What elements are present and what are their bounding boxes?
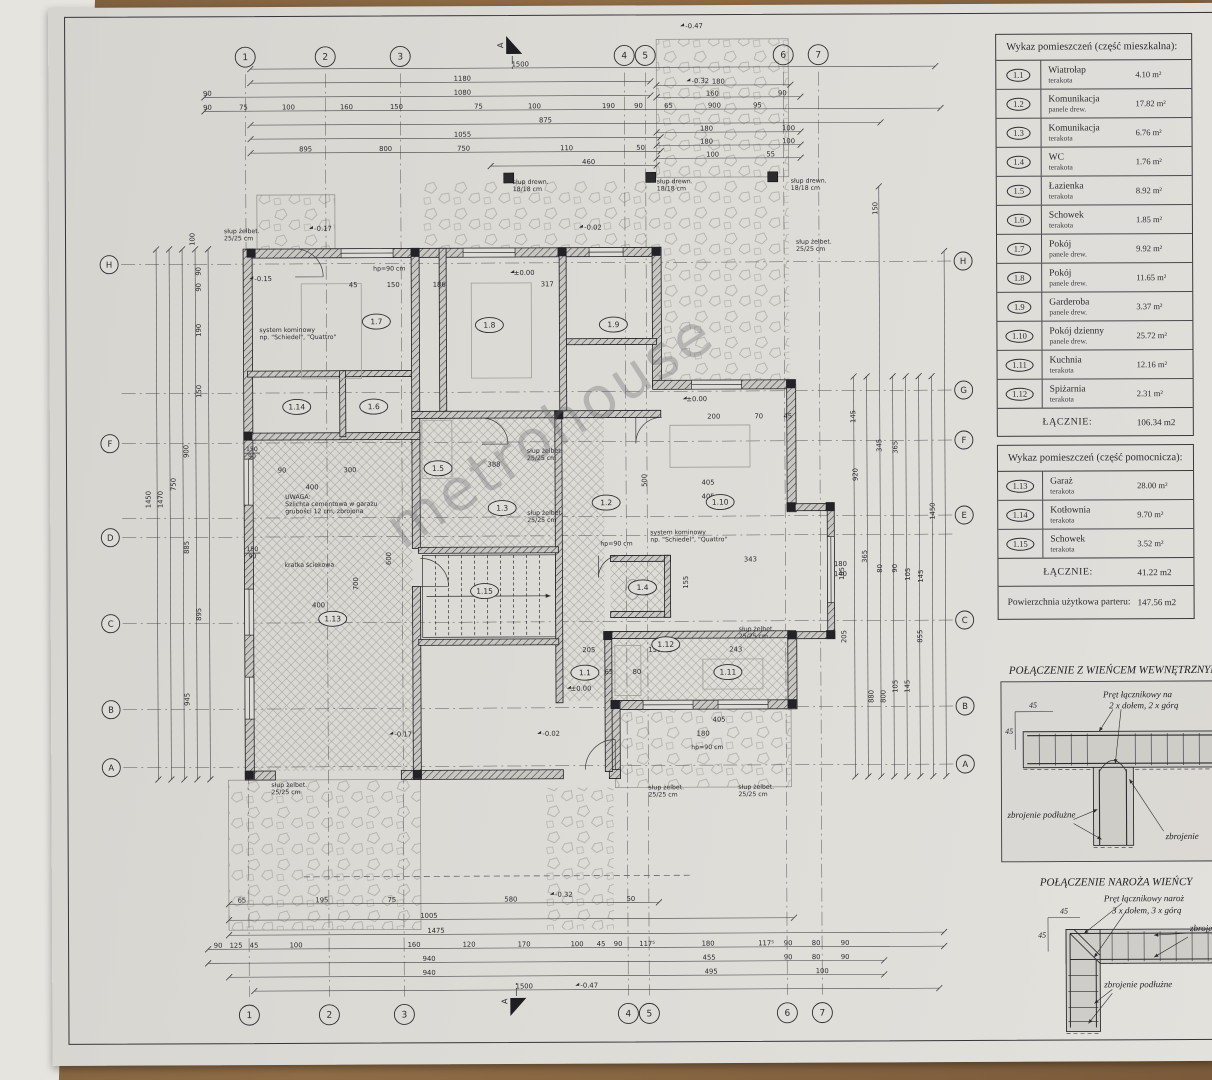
room-number: 1.9 [607,320,619,329]
room-finish: terakota [1048,75,1131,84]
room-name-cell: Garderobapanele drew. [1042,295,1136,318]
room-number: 1.10 [712,498,729,507]
dim-label: 90 [778,89,787,97]
dim-label: 920 [852,468,860,481]
dim-label: 150 [390,103,403,111]
dim-label: 90 [784,953,793,961]
room-row: 1.2Komunikacjapanele drew.17.82 m² [996,89,1191,119]
note-text: 18/18 cm [791,185,820,192]
dim-label: 65 [605,668,614,676]
dim-label: 895 [299,145,312,153]
rc-column-square [787,502,796,511]
dim-label: 1450 [145,491,153,508]
dim-line [944,251,946,776]
room-area: 2.31 m² [1137,388,1193,398]
rc-column-square [826,502,835,511]
detail-2-spec-label: 3 x dołem, 3 x górą [1111,905,1182,915]
grid-bubble-label: B [108,706,114,716]
room-table-aux-title: Wykaz pomieszczeń (część pomocnicza): [998,445,1193,472]
dim-label: 160 [706,90,719,98]
dim-label: 1080 [454,89,471,97]
room-number: 1.5 [432,464,444,473]
dim-label: 455 [703,954,716,962]
dim-label: 90 [214,942,223,950]
floor-plan: 11223344556677HHGFFEDCCBBAA [60,4,1000,1054]
room-row: 1.14Kotłowniaterakota9.70 m² [998,500,1193,530]
room-row: 1.5Łazienkaterakota8.92 m² [997,176,1192,206]
room-row: 1.9Garderobapanele drew.3.37 m² [997,292,1192,322]
level-label: -0.17 [394,730,412,738]
dim-label: 120 [463,941,476,949]
dim-label: 750 [170,478,178,491]
dim-label: 300 [344,466,357,474]
detail-2-title: POŁĄCZENIE NAROŻA WIEŃCY [1039,876,1195,889]
detail-1-longitudinal-label: zbrojenie podłużne [1007,810,1076,820]
room-row: 1.8Pokójpanele drew.11.65 m² [997,263,1192,293]
room-name: Komunikacja [1048,94,1131,104]
room-name: Spiżarnia [1050,384,1133,394]
dim-label: 145 [903,680,911,693]
wood-post-square [646,172,656,182]
dim-label: 90 [195,283,203,292]
note-text: system kominowy [650,529,706,536]
room-area: 11.65 m² [1136,272,1192,282]
room-row: 1.13Garażterakota28.00 m² [998,471,1193,501]
dim-label: 90 [784,939,793,947]
dim-label: 50 [627,895,636,903]
room-name-cell: Wiatrołapterakota [1041,63,1135,86]
total-value: 41.22 m2 [1137,567,1193,577]
dim-label: 75 [388,896,397,904]
rc-column-square [558,247,567,256]
note-text: 25/25 cm [739,633,768,640]
level-label: -0.17 [314,225,332,233]
detail-1-dim-top: 45 [1029,701,1037,710]
dim-line [854,376,856,776]
room-finish: terakota [1049,133,1132,142]
dim-label: 195 [315,896,328,904]
note-text: słup żelbet. [224,228,260,235]
grid-bubble-label: 1 [247,1011,253,1021]
dim-label: 243 [729,645,742,653]
dim-label: 160 [408,941,421,949]
rc-column-square [611,700,620,709]
room-name: Garderoba [1049,297,1132,307]
section-marker-triangle [510,998,526,1016]
grid-bubble-label: 1 [242,53,248,63]
dim-label: 100 [782,124,795,132]
room-schedule-panel: Wykaz pomieszczeń (część mieszkalna): 1.… [995,33,1195,620]
note-text: 25/25 cm [527,455,556,462]
room-name: WC [1049,152,1132,162]
room-finish: panele drew. [1049,278,1132,287]
level-label: ±0.00 [571,685,592,693]
note-text: słup żelbet. [527,510,563,517]
room-finish: panele drew. [1049,336,1132,345]
room-name-cell: Kotłowniaterakota [1043,503,1137,526]
usable-area-row: Powierzchnia użytkowa parteru: 147.56 m2 [998,586,1195,620]
room-number-badge: 1.11 [998,351,1043,379]
note-text: system kominowy [259,327,315,334]
dim-label: 117⁵ [639,940,655,948]
dim-label: 45 [250,942,259,950]
dim-label: 90 [634,102,643,110]
dim-label: 150 [871,202,879,215]
grid-bubble-label: E [962,511,967,521]
room-finish: terakota [1050,394,1133,403]
grid-bubble-label: 6 [785,1009,791,1019]
dim-label: 80 [876,564,884,573]
note-text: słup żelbet. [738,784,774,791]
room-row: 1.15Schowekterakota3.52 m² [998,529,1193,558]
grid-bubble-label: 4 [626,1009,632,1019]
room-row: 1.4WCterakota1.76 m² [997,147,1192,177]
dim-label: 100 [816,967,829,975]
level-mark-icon [510,270,514,273]
room-row: 1.10Pokój dziennypanele drew.25.72 m² [997,321,1192,351]
room-number: 1.11 [720,668,737,677]
detail-2-reinforcement-label: zbrojenie [1189,923,1212,933]
note-text: słup żelbet. [796,239,832,246]
dim-line [208,249,210,779]
dim-label: 100 [282,103,295,111]
dim-label: 1055 [454,131,471,139]
dim-label: 180 [712,78,725,86]
detail-2-rod-label: Pręt łącznikowy naroż [1103,893,1185,903]
room-finish: terakota [1050,365,1133,374]
dim-line [251,151,661,153]
note-text: słup drewn. [657,178,693,185]
note-text: hp=90 cm [373,265,405,272]
grid-bubble-label: H [106,261,112,271]
room-number-badge: 1.7 [997,235,1042,263]
room-row: 1.3Komunikacjaterakota6.76 m² [996,118,1191,148]
room-area: 9.70 m² [1137,509,1193,519]
dim-label: 317 [541,280,554,288]
detail-1-reinforcement-label: zbrojenie [1165,831,1199,841]
dim-label: 365 [861,550,869,563]
section-letter: A [496,42,505,48]
room-name-cell: Kuchniaterakota [1043,353,1137,376]
dim-label: 600 [385,552,393,565]
dim-label: 186 [433,281,446,289]
dim-label: 105 [904,568,912,581]
room-area: 9.92 m² [1136,243,1192,253]
note-text: UWAGA: [285,494,310,501]
room-name: Pokój dzienny [1049,326,1132,336]
room-finish: panele drew. [1049,307,1132,316]
room-finish: panele drew. [1048,104,1131,113]
dim-line [204,108,940,111]
room-number: 1.13 [324,614,341,623]
room-finish: panele drew. [1049,249,1132,258]
level-label: ±0.00 [514,269,535,277]
grid-bubble-label: 2 [322,53,328,63]
room-area: 8.92 m² [1136,185,1192,195]
room-number-badge: 1.15 [998,530,1043,558]
note-text: 25/25 cm [527,517,556,524]
dim-line [169,249,171,779]
dim-label: 800 [379,145,392,153]
room-number: 1.6 [368,402,380,411]
note-text: 90 [248,553,256,560]
grid-bubble-label: 5 [642,51,648,61]
room-row: 1.11Kuchniaterakota12.16 m² [998,350,1193,380]
dim-label: 880 [867,690,875,703]
room-area: 17.82 m² [1135,98,1191,108]
dim-label: 1500 [512,60,529,68]
dim-line [156,250,158,780]
dim-label: 875 [539,116,552,124]
room-name: Pokój [1049,239,1132,249]
room-row: 1.1Wiatrołapterakota4.10 m² [996,60,1191,90]
room-area: 28.00 m² [1137,480,1193,490]
note-text: 150 [246,546,258,553]
note-text: grubości 12 cm, zbrojona [285,507,363,515]
grid-bubble-label: 3 [397,52,403,62]
dim-label: 900 [182,445,190,458]
dim-label: 95 [753,101,762,109]
dim-label: 90 [841,939,850,947]
grid-bubble-label: 7 [815,51,821,61]
level-mark-icon [575,983,579,986]
detail-2-longitudinal-label: zbrojenie podłużne [1103,979,1172,989]
level-mark-icon [680,23,684,26]
room-name-cell: Pokójpanele drew. [1042,237,1136,260]
room-number: 1.2 [600,498,612,507]
dim-label: 90 [841,953,850,961]
dim-label: 900 [708,102,721,110]
dim-label: 55 [766,150,775,158]
total-label: ŁĄCZNIE: [998,416,1137,428]
note-text: 18/18 cm [657,185,686,192]
dim-label: 1470 [157,491,165,508]
level-label: -0.47 [685,22,703,30]
grid-bubble-label: C [962,616,968,626]
dim-label: 145 [917,570,925,583]
dim-label: 125 [230,942,243,950]
note-text: 18/18 cm [513,186,542,193]
room-name: Komunikacja [1049,123,1132,133]
dim-line [229,974,884,977]
level-label: -0.02 [584,224,602,232]
room-number-badge: 1.8 [997,264,1042,292]
dim-label: 190 [602,102,615,110]
note-text: 150 [246,446,258,453]
dim-label: 90 [891,564,899,573]
dim-label: 800 [879,690,887,703]
room-number-badge: 1.5 [997,177,1042,205]
note-text: słup żelbet. [527,448,563,455]
room-table-main-title: Wykaz pomieszczeń (część mieszkalna): [996,34,1191,61]
dim-label: 495 [705,968,718,976]
note-text: słup żelbet. [648,784,684,791]
level-label: -0.15 [254,275,272,283]
dim-label: 1450 [929,502,937,519]
section-marker-triangle [506,36,522,54]
dim-label: 65 [664,102,673,110]
room-number-badge: 1.9 [997,293,1042,321]
dim-line [250,81,650,83]
grid-bubble-label: F [107,440,112,450]
room-row: 1.7Pokójpanele drew.9.92 m² [997,234,1192,264]
dim-label: 945 [183,693,191,706]
dim-label: 343 [744,555,757,563]
dim-label: 1475 [427,927,444,935]
room-area: 12.16 m² [1137,359,1193,369]
dim-label: 150 [387,281,400,289]
detail-2-dim-side: 45 [1038,931,1046,940]
rc-column-square [787,630,796,639]
dim-label: 180 [700,125,713,133]
usable-area-value: 147.56 m2 [1138,597,1194,607]
dim-label: 400 [306,483,319,491]
room-number-badge: 1.1 [996,61,1041,89]
room-table-aux: Wykaz pomieszczeń (część pomocnicza): 1.… [997,444,1195,587]
wood-post-square [768,172,778,182]
dim-label: 855 [916,630,924,643]
note-text: np. "Schiedel", "Quattro" [650,536,727,543]
room-table-aux-total: ŁĄCZNIE: 41.22 m2 [998,557,1193,586]
dim-label: 100 [290,941,303,949]
dim-line [879,186,882,776]
note-text: 25/25 cm [224,235,253,242]
rc-column-square [554,410,563,419]
level-label: -0.32 [692,77,710,85]
grid-bubble-label: 6 [780,51,786,61]
dim-label: 885 [183,541,191,554]
drawing-sheet: 11223344556677HHGFFEDCCBBAA [48,3,1212,1066]
grid-bubble-label: A [108,764,114,774]
section-letter: A [500,998,509,1004]
room-table-main: Wykaz pomieszczeń (część mieszkalna): 1.… [995,33,1194,437]
dim-label: 80 [812,939,821,947]
dim-line [893,376,895,776]
grid-bubble-label: H [960,257,966,267]
rc-column-square [788,699,797,708]
room-name: Kotłownia [1050,505,1133,515]
note-text: hp=90 cm [600,540,632,547]
dim-label: 400 [312,601,325,609]
dim-label: 405 [713,716,726,724]
dim-label: 45 [783,412,792,420]
rc-column-square [243,432,252,441]
dim-label: 205 [840,630,848,643]
room-number-badge: 1.2 [996,90,1041,118]
grid-bubble-label: 3 [402,1010,408,1020]
dim-label: 180 [697,730,710,738]
room-name-cell: Spiżarniaterakota [1043,382,1137,405]
dim-label: 90 [614,940,623,948]
grid-bubble-label: A [962,760,968,770]
room-name: Wiatrołap [1048,65,1131,75]
room-number-badge: 1.12 [998,380,1043,408]
room-name: Schowek [1050,534,1133,544]
room-number: 1.7 [370,317,382,326]
dim-line [208,960,884,963]
room-name: Garaż [1050,476,1133,486]
dim-label: 940 [423,955,436,963]
room-finish: terakota [1049,220,1132,229]
dim-label: 700 [352,577,360,590]
detail-1-spec-label: 2 x dołem, 2 x górą [1109,700,1179,710]
dim-label: 140 [834,570,847,578]
dim-label: 200 [707,413,720,421]
dim-label: 90 [203,90,212,98]
dim-label: 100 [571,940,584,948]
dim-label: 365 [891,441,899,454]
dim-label: 405 [702,479,715,487]
grid-bubble-label: 4 [621,51,627,61]
room-finish: terakota [1049,162,1132,171]
room-name-cell: Garażterakota [1043,474,1137,497]
dim-label: 117⁵ [758,939,774,947]
room-number: 1.4 [637,583,649,592]
rc-column-square [247,249,256,258]
room-name-cell: Łazienkaterakota [1042,179,1136,202]
room-area: 6.76 m² [1136,127,1192,137]
room-area: 4.10 m² [1135,69,1191,79]
level-label: -0.32 [555,891,573,899]
room-name: Łazienka [1049,181,1132,191]
detail-2-dim-top: 45 [1060,907,1068,916]
level-mark-icon [537,731,541,734]
dim-label: 150 [195,385,203,398]
level-label: -0.02 [542,730,560,738]
room-name-cell: Pokójpanele drew. [1042,266,1136,289]
level-mark-icon [683,396,687,399]
grid-line-vertical [818,72,822,995]
grid-bubble-label: C [108,620,114,630]
room-name-cell: Pokój dziennypanele drew. [1042,324,1136,347]
dim-label: 145 [849,410,857,423]
dim-label: 155 [682,576,690,589]
room-number: 1.15 [476,587,493,596]
note-text: słup drewn. [513,179,549,186]
room-number-badge: 1.10 [997,322,1042,350]
room-name-cell: Schowekterakota [1043,532,1137,555]
grid-bubble-label: 2 [327,1011,333,1021]
room-table-main-total: ŁĄCZNIE: 106.34 m2 [998,407,1193,436]
dim-line [491,165,657,166]
room-row: 1.6Schowekterakota1.85 m² [997,205,1192,235]
dim-line [867,376,869,776]
rc-column-square [826,630,835,639]
dim-label: 1180 [454,75,471,83]
room-number-badge: 1.13 [998,472,1043,500]
detail-1-rod-label: Pręt łącznikowy na [1102,689,1173,699]
dim-label: 940 [423,969,436,977]
note-text: Szlichta cementowa w garażu [285,501,377,508]
detail-1-dim-side: 45 [1005,727,1013,736]
note-text: 25/25 cm [648,791,677,798]
total-value: 106.34 m2 [1137,417,1193,427]
dim-label: 65 [238,897,247,905]
detail-corner-ring-beam: POŁĄCZENIE NAROŻA WIEŃCY [1004,871,1212,1048]
room-number: 1.3 [496,504,508,513]
dim-label: 750 [457,145,470,153]
grid-bubble-label: 7 [820,1009,826,1019]
dim-label: 160 [340,103,353,111]
dim-label: 180 [702,940,715,948]
rc-column-square [786,379,795,388]
dim-label: 100 [706,151,719,159]
grid-bubble-label: 5 [647,1009,653,1019]
room-number: 1.8 [483,321,495,330]
room-number-badge: 1.6 [997,206,1042,234]
note-text: słup żelbet. [739,626,775,633]
dim-label: 45 [597,940,606,948]
